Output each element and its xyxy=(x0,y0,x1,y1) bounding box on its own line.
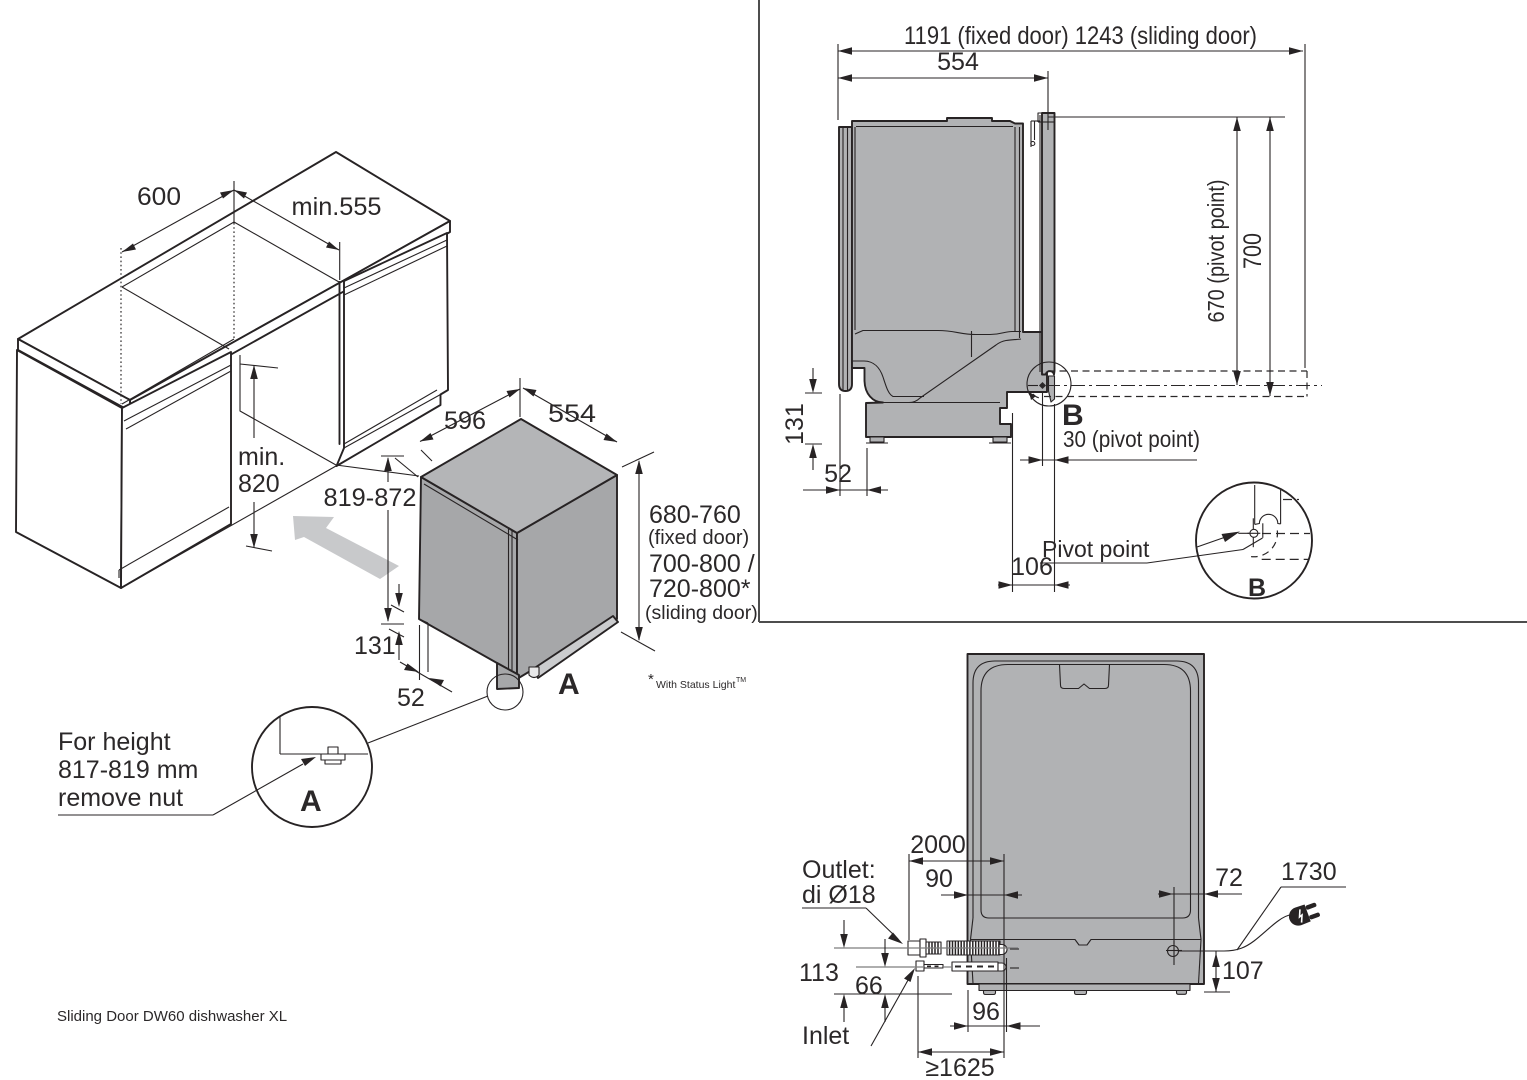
svg-text:TM: TM xyxy=(736,677,746,684)
svg-text:A: A xyxy=(558,668,580,701)
svg-text:600: 600 xyxy=(137,183,181,211)
svg-text:720-800*: 720-800* xyxy=(649,575,751,603)
svg-text:Inlet: Inlet xyxy=(802,1022,849,1050)
svg-text:min.: min. xyxy=(238,443,285,471)
svg-text:596: 596 xyxy=(444,407,486,435)
svg-text:remove nut: remove nut xyxy=(58,784,183,812)
svg-text:Sliding Door DW60 dishwasher X: Sliding Door DW60 dishwasher XL xyxy=(57,1008,287,1025)
svg-text:554: 554 xyxy=(548,400,596,428)
svg-text:A: A xyxy=(300,785,322,818)
svg-text:700-800 /: 700-800 / xyxy=(649,550,755,578)
svg-text:*: * xyxy=(648,671,654,688)
svg-text:Pivot point: Pivot point xyxy=(1042,536,1150,562)
svg-text:30 (pivot point): 30 (pivot point) xyxy=(1063,426,1200,452)
svg-text:With Status Light: With Status Light xyxy=(656,679,735,691)
svg-text:(fixed door): (fixed door) xyxy=(648,527,749,549)
svg-text:66: 66 xyxy=(855,972,883,1000)
svg-text:670 (pivot point): 670 (pivot point) xyxy=(1203,180,1229,323)
svg-text:min.555: min.555 xyxy=(292,193,382,221)
svg-text:90: 90 xyxy=(925,865,953,893)
svg-text:107: 107 xyxy=(1222,957,1264,985)
svg-text:96: 96 xyxy=(972,998,1000,1026)
svg-text:817-819 mm: 817-819 mm xyxy=(58,756,198,784)
svg-text:113: 113 xyxy=(799,959,839,987)
svg-text:1191 (fixed door) 1243 (slidin: 1191 (fixed door) 1243 (sliding door) xyxy=(904,22,1257,50)
svg-text:131: 131 xyxy=(781,403,809,445)
svg-text:Outlet:: Outlet: xyxy=(802,856,876,884)
svg-text:680-760: 680-760 xyxy=(649,501,741,529)
svg-text:≥1625: ≥1625 xyxy=(925,1054,994,1080)
svg-text:700: 700 xyxy=(1239,233,1267,269)
svg-text:2000: 2000 xyxy=(910,831,966,859)
svg-text:52: 52 xyxy=(397,684,425,712)
svg-text:1730: 1730 xyxy=(1281,858,1337,886)
svg-text:(sliding door): (sliding door) xyxy=(645,602,758,624)
svg-text:52: 52 xyxy=(824,460,852,488)
svg-text:B: B xyxy=(1248,574,1266,602)
svg-text:820: 820 xyxy=(238,470,280,498)
svg-text:819-872: 819-872 xyxy=(324,484,417,512)
svg-text:For height: For height xyxy=(58,728,171,756)
svg-text:di Ø18: di Ø18 xyxy=(802,881,876,909)
svg-text:72: 72 xyxy=(1215,864,1243,892)
svg-text:131: 131 xyxy=(354,632,396,660)
svg-text:554: 554 xyxy=(937,48,979,76)
